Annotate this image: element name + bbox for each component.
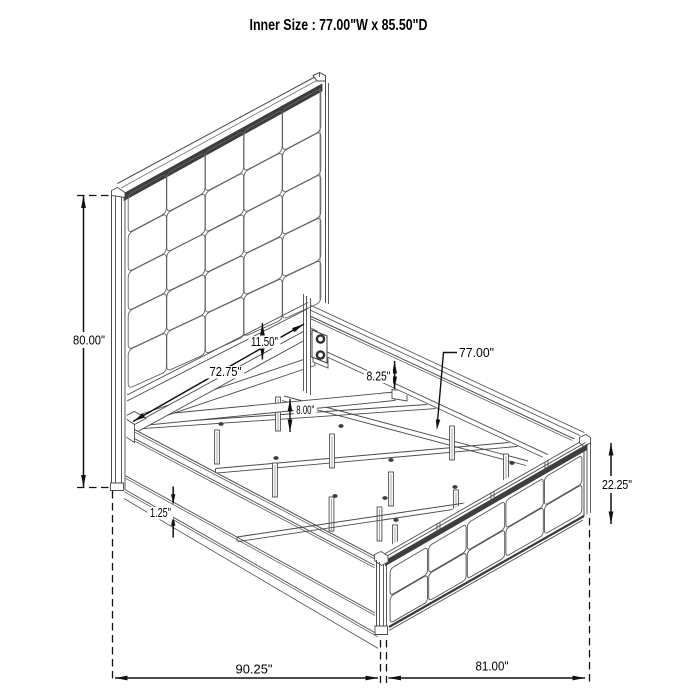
svg-text:22.25": 22.25" <box>602 477 632 492</box>
svg-text:72.75": 72.75" <box>210 364 242 379</box>
svg-text:11.50": 11.50" <box>251 334 278 349</box>
svg-text:8.25": 8.25" <box>367 369 391 384</box>
svg-text:8.00": 8.00" <box>296 405 314 417</box>
svg-text:90.25": 90.25" <box>236 662 273 677</box>
svg-text:Inner Size : 77.00"W x 85.50"D: Inner Size : 77.00"W x 85.50"D <box>250 17 428 34</box>
svg-text:77.00": 77.00" <box>459 345 494 360</box>
svg-text:80.00": 80.00" <box>73 333 105 348</box>
svg-text:1.25": 1.25" <box>150 505 171 520</box>
svg-text:81.00": 81.00" <box>476 659 509 674</box>
